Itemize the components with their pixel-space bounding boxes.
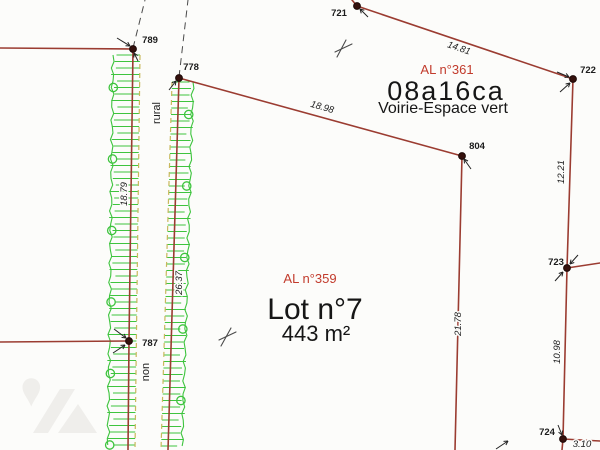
label-724: 724 xyxy=(539,427,556,438)
boundary-west-to-787 xyxy=(0,341,129,342)
dim-3-10: 3.10 xyxy=(573,439,592,450)
plan-drawing: 789 778 721 722 804 723 724 787 14.81 18… xyxy=(0,0,600,450)
cadastral-plan-canvas: 789 778 721 722 804 723 724 787 14.81 18… xyxy=(0,0,600,450)
lot-code: AL n°359 xyxy=(283,271,336,286)
marker-778 xyxy=(176,75,183,82)
zone-361-desc: Voirie-Espace vert xyxy=(378,100,508,117)
marker-723 xyxy=(564,265,571,272)
marker-722 xyxy=(570,76,577,83)
dim-12-21: 12.21 xyxy=(556,160,567,184)
dim-26-37: 26.37 xyxy=(174,270,185,295)
path-label-rural: rural xyxy=(151,102,163,124)
marker-789 xyxy=(130,46,137,53)
label-721: 721 xyxy=(331,8,348,19)
marker-787 xyxy=(126,338,133,345)
ref-arrow-head xyxy=(175,81,176,85)
label-804: 804 xyxy=(469,141,486,152)
boundary-west-to-789 xyxy=(0,48,133,49)
ref-arrow-head xyxy=(562,431,563,435)
dim-18-79: 18.79 xyxy=(119,181,130,205)
lot-area: 443 m² xyxy=(282,321,350,346)
ref-arrow-head xyxy=(122,337,126,338)
plan-background xyxy=(0,0,600,450)
label-787: 787 xyxy=(142,338,158,349)
label-723: 723 xyxy=(548,257,564,268)
marker-724 xyxy=(560,436,567,443)
dim-21-78: 21.78 xyxy=(453,311,464,336)
zone-361-code: AL n°361 xyxy=(420,62,473,77)
label-722: 722 xyxy=(580,65,596,76)
label-789: 789 xyxy=(142,35,158,46)
dim-10-98: 10.98 xyxy=(552,339,563,363)
marker-721 xyxy=(354,3,361,10)
marker-804 xyxy=(459,153,466,160)
label-778: 778 xyxy=(183,62,199,73)
path-label-non: non xyxy=(140,363,152,381)
